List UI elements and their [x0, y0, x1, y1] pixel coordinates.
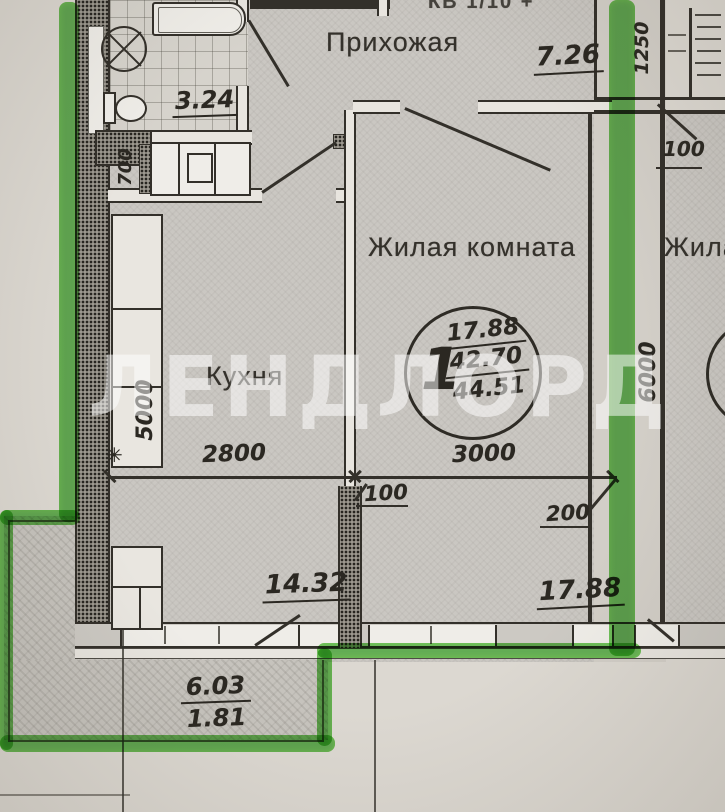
- lower-cabinet-divider: [111, 586, 163, 588]
- dim-partition-thickness: 100: [363, 480, 408, 506]
- living-window-mullion: [430, 626, 432, 644]
- hallway-label: Прихожая: [326, 27, 459, 58]
- green-highlight-balcony-bottom: [0, 735, 335, 752]
- bathroom-area: 3.24: [171, 85, 237, 118]
- green-highlight-right-wall: [609, 0, 635, 656]
- dim-kitchen-width: 2800: [202, 440, 267, 468]
- top-clipped-text: КВ 1/10 +: [428, 0, 534, 14]
- watermark-text: ЛЕНДЛОРД: [88, 338, 670, 436]
- balcony-arm-bottom: [4, 660, 328, 740]
- balcony-area-full: 6.03: [180, 671, 250, 704]
- living-top-wall-left: [353, 100, 400, 114]
- green-highlight-balcony-right: [317, 648, 332, 746]
- sink-basin: [187, 153, 213, 183]
- faint-line-bottom: [0, 794, 130, 796]
- balcony-area-reduced: 1.81: [186, 702, 246, 733]
- adjacent-room-label-partial: Жила: [664, 232, 725, 263]
- kitchen-area: 14.32: [261, 567, 350, 603]
- kitchen-cabinets-lower: [111, 546, 163, 630]
- dim-top-right-thickness: 100: [663, 137, 705, 161]
- green-highlight-bottom-wall: [317, 643, 641, 658]
- living-top-wall-right: [478, 100, 612, 114]
- kitchen-window-mullion-1: [164, 626, 166, 644]
- hallway-top-stub: [377, 0, 389, 16]
- hatch-dash-5: [695, 62, 721, 64]
- underline-200: [540, 526, 592, 528]
- hatch-dash-2: [697, 26, 721, 28]
- hallway-top-wall: [250, 0, 390, 9]
- extension-line-center: [374, 660, 376, 812]
- hatch-dash-8: [668, 50, 686, 52]
- adjacent-window-line: [689, 8, 692, 98]
- dim-niche-width: 700: [114, 144, 136, 190]
- dim-wall-thickness: 200: [545, 500, 590, 526]
- toilet-bowl: [115, 95, 147, 122]
- balcony-arm-left: [4, 516, 78, 662]
- sink-counter-divider-1: [178, 144, 180, 194]
- lower-cabinet-inner-line: [139, 586, 141, 630]
- balcony-area-fraction: 6.03 1.81: [183, 671, 249, 733]
- hatch-dash-1: [695, 14, 721, 16]
- kitchen-window-mullion-2: [218, 626, 220, 644]
- green-highlight-left-wall: [59, 2, 79, 522]
- asterisk-mark: ✳: [106, 443, 123, 467]
- cabinet-divider-1: [111, 308, 163, 310]
- dim-living-width: 3000: [452, 440, 517, 468]
- bathtub-inner-outline: [158, 7, 242, 33]
- dimension-line-horizontal: [110, 476, 617, 479]
- hatch-dash-6: [697, 74, 721, 76]
- living-room-label: Жилая комната: [368, 232, 576, 263]
- hallway-area: 7.26: [532, 39, 604, 76]
- green-highlight-balcony-left: [0, 510, 13, 750]
- floorplan-canvas: 1 17.88 42.70 44.51 Прихожая 7.26 3.24 К…: [0, 0, 725, 812]
- hatch-dash-7: [668, 34, 686, 36]
- extension-line-left: [122, 610, 124, 812]
- hatch-dash-4: [697, 50, 721, 52]
- underline-100-topright: [656, 167, 702, 169]
- sink-wall-stub: [139, 144, 151, 194]
- party-wall-right-face: [660, 0, 665, 622]
- bathroom-right-wall-lower: [236, 86, 249, 132]
- hatch-dash-3: [695, 38, 721, 40]
- sink-counter-divider-2: [214, 144, 216, 194]
